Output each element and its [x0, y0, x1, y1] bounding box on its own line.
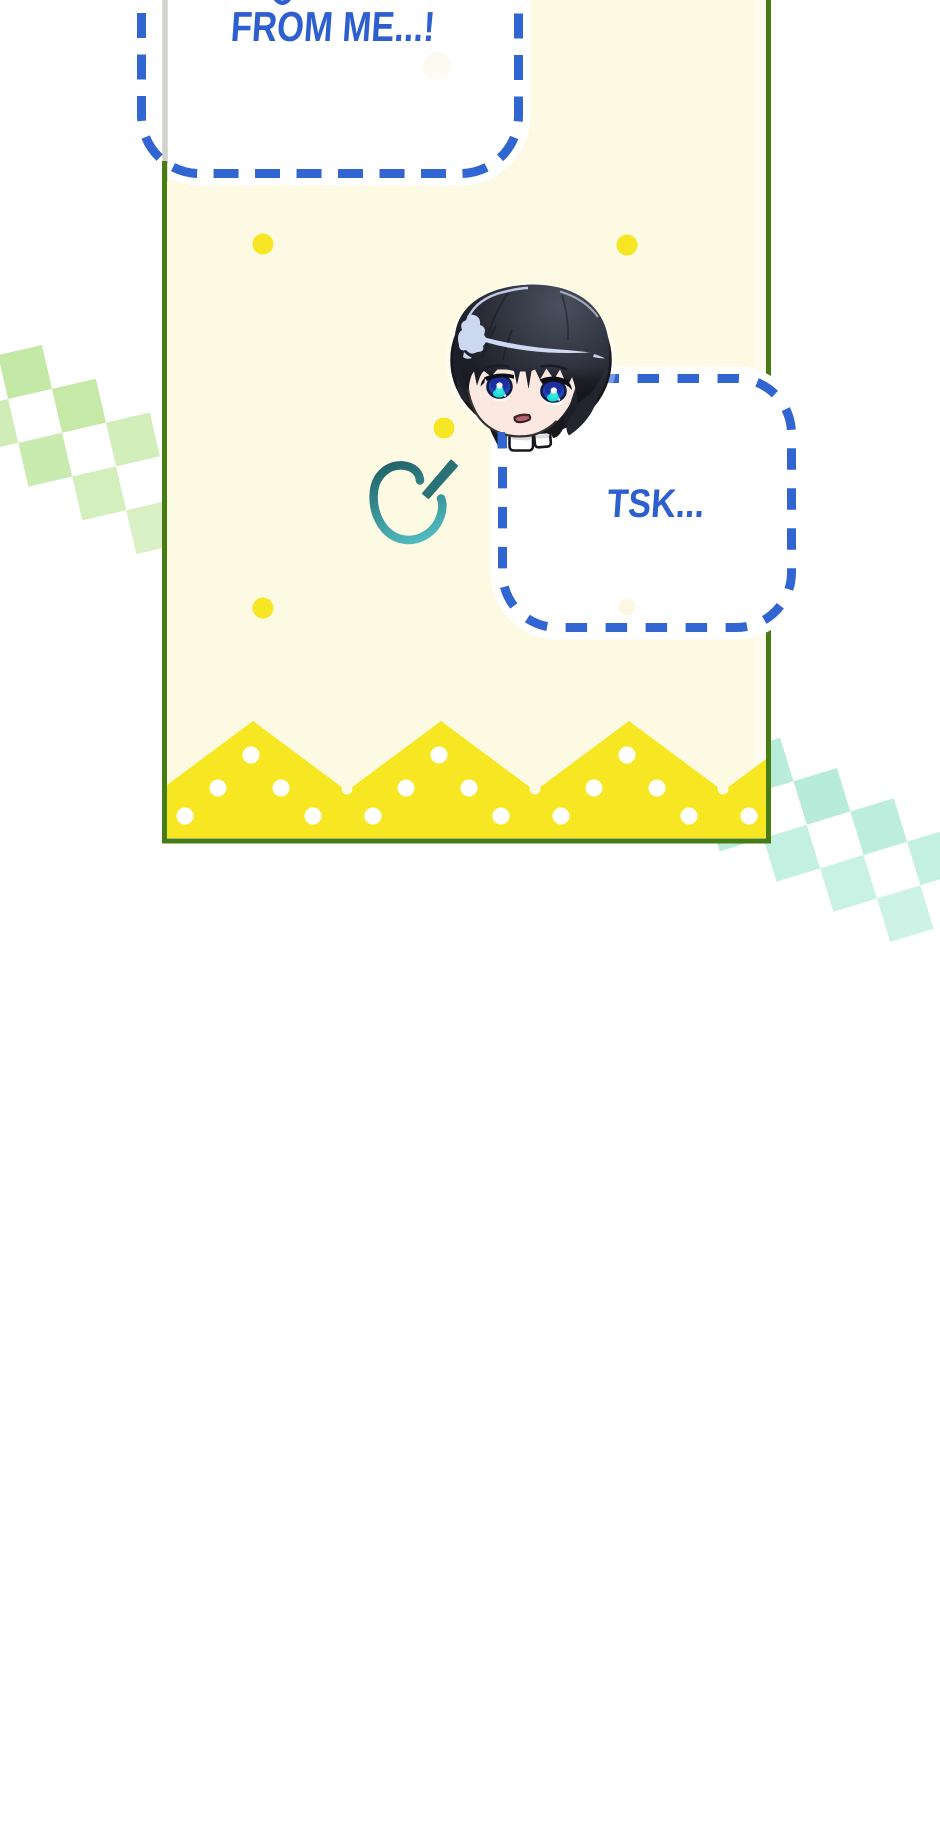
svg-text:FROM ME...!: FROM ME...! [229, 3, 436, 50]
svg-text:TSK...: TSK... [606, 482, 706, 526]
